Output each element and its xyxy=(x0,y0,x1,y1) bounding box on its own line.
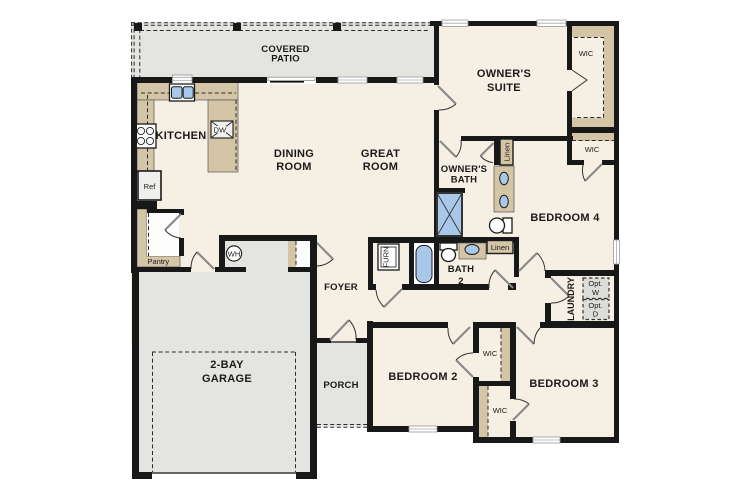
svg-text:Ref: Ref xyxy=(144,182,157,191)
svg-text:WIC: WIC xyxy=(493,406,508,415)
svg-text:WIC: WIC xyxy=(585,145,600,154)
svg-text:OWNER'S: OWNER'S xyxy=(477,68,531,80)
svg-text:ROOM: ROOM xyxy=(276,161,311,173)
svg-text:Linen: Linen xyxy=(503,143,512,161)
svg-text:GREAT: GREAT xyxy=(361,148,400,160)
svg-text:ROOM: ROOM xyxy=(363,161,398,173)
svg-text:D: D xyxy=(593,310,599,319)
svg-text:SUITE: SUITE xyxy=(487,82,521,94)
svg-text:WH: WH xyxy=(228,250,241,259)
svg-text:BEDROOM 3: BEDROOM 3 xyxy=(529,378,598,390)
svg-text:W: W xyxy=(592,288,600,297)
svg-text:BEDROOM 4: BEDROOM 4 xyxy=(530,212,600,224)
svg-text:KITCHEN: KITCHEN xyxy=(156,130,207,142)
svg-text:2-BAY: 2-BAY xyxy=(210,359,244,371)
svg-text:Opt.: Opt. xyxy=(588,279,602,288)
svg-text:BEDROOM 2: BEDROOM 2 xyxy=(388,371,457,383)
svg-text:LAUNDRY: LAUNDRY xyxy=(566,277,576,321)
svg-text:GARAGE: GARAGE xyxy=(202,373,252,385)
svg-text:FOYER: FOYER xyxy=(324,282,358,293)
svg-text:FURN: FURN xyxy=(382,247,391,268)
svg-text:WIC: WIC xyxy=(483,349,498,358)
svg-text:BATH: BATH xyxy=(448,264,474,275)
svg-text:DINING: DINING xyxy=(274,148,314,160)
svg-text:DW: DW xyxy=(214,125,227,134)
svg-text:Pantry: Pantry xyxy=(148,257,170,266)
svg-text:WIC: WIC xyxy=(579,49,594,58)
svg-text:PATIO: PATIO xyxy=(271,54,300,65)
svg-text:2: 2 xyxy=(458,276,463,287)
svg-text:PORCH: PORCH xyxy=(323,380,358,391)
svg-text:Linen: Linen xyxy=(491,243,509,252)
svg-text:BATH: BATH xyxy=(451,175,477,186)
svg-text:OWNER'S: OWNER'S xyxy=(441,164,487,175)
